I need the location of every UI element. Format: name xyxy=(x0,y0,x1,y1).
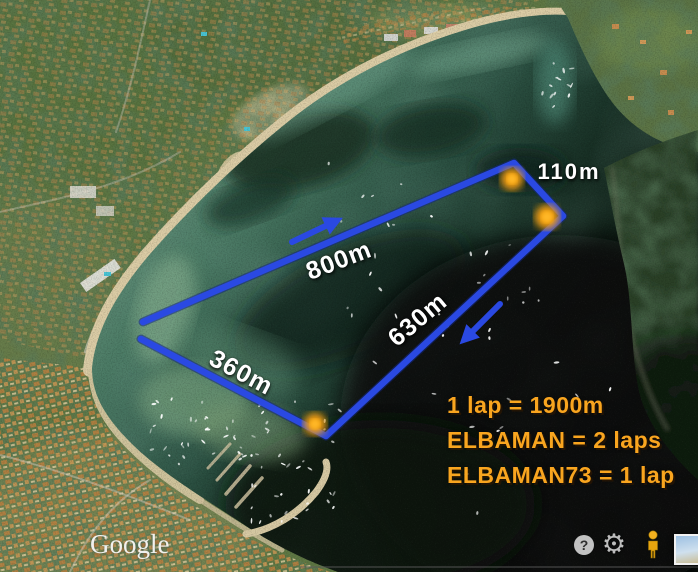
help-button[interactable]: ? xyxy=(574,535,594,555)
lap-info-line-3: ELBAMAN73 = 1 lap xyxy=(447,462,675,489)
settings-gear-icon[interactable]: ⚙ xyxy=(601,529,627,559)
bottom-edge-line xyxy=(300,566,698,568)
lap-info-line-1: 1 lap = 1900m xyxy=(447,392,675,419)
pegman-icon[interactable] xyxy=(644,530,662,560)
satellite-map[interactable]: 110m 800m 630m 360m 1 lap = 1900m ELBAMA… xyxy=(0,0,698,572)
lap-info-line-2: ELBAMAN = 2 laps xyxy=(447,427,675,454)
lap-info-panel: 1 lap = 1900m ELBAMAN = 2 laps ELBAMAN73… xyxy=(447,392,675,497)
google-watermark[interactable]: Google xyxy=(90,529,169,560)
pegman-figure xyxy=(644,530,662,560)
course-distance-label-110m: 110m xyxy=(537,159,600,185)
overview-map-thumbnail[interactable] xyxy=(674,534,698,565)
